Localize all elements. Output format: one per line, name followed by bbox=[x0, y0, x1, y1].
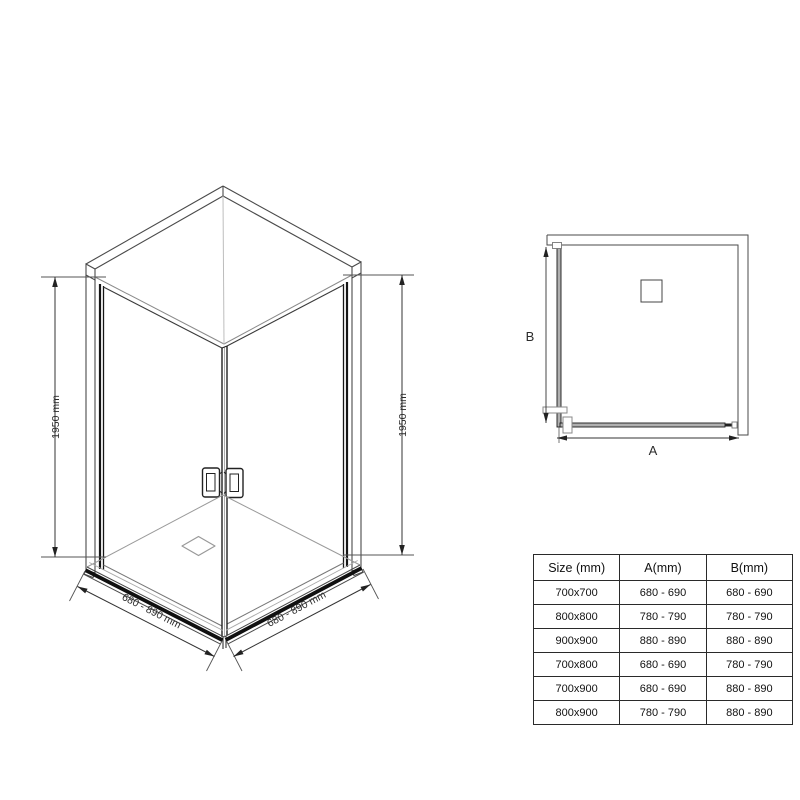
height-label-right: 1950 mm bbox=[397, 393, 409, 437]
cell-b: 780 - 790 bbox=[706, 605, 792, 629]
width-label: A bbox=[649, 443, 658, 458]
height-dimension-right: 1950 mm bbox=[343, 275, 414, 555]
center-post-bottom-tail bbox=[223, 636, 226, 649]
top-frame-left-corner-cap bbox=[86, 264, 95, 280]
plan-view: B A bbox=[515, 220, 800, 470]
cell-size: 700x900 bbox=[534, 677, 620, 701]
height-label-left: 1950 mm bbox=[50, 395, 62, 439]
depth-label: B bbox=[526, 329, 535, 344]
cell-a: 880 - 890 bbox=[620, 629, 706, 653]
right-handle-inner bbox=[230, 474, 239, 492]
cell-b: 880 - 890 bbox=[706, 677, 792, 701]
arrow-left-icon bbox=[78, 587, 88, 594]
arrow-right-icon bbox=[204, 650, 214, 657]
cell-size: 800x800 bbox=[534, 605, 620, 629]
table-row: 700x900 680 - 690 880 - 890 bbox=[534, 677, 793, 701]
plan-handle-horizontal bbox=[543, 407, 567, 413]
header-a: A(mm) bbox=[620, 555, 706, 581]
right-door-top-edge bbox=[227, 285, 344, 346]
plan-walls bbox=[547, 235, 748, 435]
table-row: 800x900 780 - 790 880 - 890 bbox=[534, 701, 793, 725]
tray-back-left-edge bbox=[87, 495, 223, 567]
arrow-right-icon bbox=[729, 435, 739, 440]
plan-bottom-glass-panel bbox=[560, 423, 725, 427]
tray-drain bbox=[182, 537, 215, 556]
shower-tray bbox=[83, 495, 363, 644]
tray-inner-right-line bbox=[226, 561, 358, 631]
arrow-up-icon bbox=[52, 277, 58, 287]
top-face-right-edge bbox=[224, 275, 352, 344]
plan-handle-vertical bbox=[563, 417, 572, 433]
arrow-up-icon bbox=[399, 275, 405, 285]
cell-size: 700x800 bbox=[534, 653, 620, 677]
left-wall-profile bbox=[84, 275, 95, 578]
plan-depth-dimension: B bbox=[526, 247, 549, 423]
arrow-right-icon bbox=[361, 585, 371, 592]
table-row: 900x900 880 - 890 880 - 890 bbox=[534, 629, 793, 653]
isometric-view: 1950 mm 1950 mm 680 - 890 mm 680 - 890 m… bbox=[40, 180, 450, 690]
table-row: 800x800 780 - 790 780 - 790 bbox=[534, 605, 793, 629]
cell-b: 880 - 890 bbox=[706, 629, 792, 653]
size-table-header-row: Size (mm) A(mm) B(mm) bbox=[534, 555, 793, 581]
cell-a: 680 - 690 bbox=[620, 581, 706, 605]
right-wall-profile bbox=[352, 273, 363, 576]
plan-width-dimension: A bbox=[557, 427, 739, 458]
door-handles bbox=[203, 468, 244, 498]
arrow-down-icon bbox=[52, 547, 58, 557]
plan-drain bbox=[641, 280, 662, 302]
plan-top-wall-bracket bbox=[553, 243, 562, 249]
top-frame-right-corner-cap bbox=[352, 262, 361, 278]
cell-a: 680 - 690 bbox=[620, 677, 706, 701]
top-face-center-seam bbox=[223, 196, 224, 344]
table-row: 700x800 680 - 690 780 - 790 bbox=[534, 653, 793, 677]
wall-outline bbox=[547, 235, 748, 435]
shower-enclosure-technical-drawing: 1950 mm 1950 mm 680 - 890 mm 680 - 890 m… bbox=[0, 0, 800, 800]
table-row: 700x700 680 - 690 680 - 690 bbox=[534, 581, 793, 605]
arrow-left-icon bbox=[234, 650, 244, 657]
left-door-top-edge bbox=[104, 287, 223, 348]
tray-back-right-edge bbox=[223, 495, 360, 565]
arrow-left-icon bbox=[557, 435, 567, 440]
top-face-left-edge bbox=[95, 277, 224, 344]
cell-a: 680 - 690 bbox=[620, 653, 706, 677]
left-handle-inner bbox=[207, 474, 216, 492]
cell-a: 780 - 790 bbox=[620, 701, 706, 725]
arrow-down-icon bbox=[543, 413, 548, 423]
top-face-edges bbox=[95, 196, 352, 344]
height-dimension-left: 1950 mm bbox=[41, 277, 106, 557]
cell-size: 800x900 bbox=[534, 701, 620, 725]
cell-b: 780 - 790 bbox=[706, 653, 792, 677]
arrow-up-icon bbox=[543, 247, 548, 257]
size-table: Size (mm) A(mm) B(mm) 700x700 680 - 690 … bbox=[533, 554, 793, 725]
arrow-down-icon bbox=[399, 545, 405, 555]
cell-size: 900x900 bbox=[534, 629, 620, 653]
header-b: B(mm) bbox=[706, 555, 792, 581]
header-size: Size (mm) bbox=[534, 555, 620, 581]
width-dimension-left: 680 - 890 mm bbox=[70, 571, 223, 671]
cell-a: 780 - 790 bbox=[620, 605, 706, 629]
cell-b: 680 - 690 bbox=[706, 581, 792, 605]
plan-left-glass-panel bbox=[557, 248, 561, 427]
cell-size: 700x700 bbox=[534, 581, 620, 605]
plan-right-wall-bracket bbox=[732, 422, 737, 428]
cell-b: 880 - 890 bbox=[706, 701, 792, 725]
